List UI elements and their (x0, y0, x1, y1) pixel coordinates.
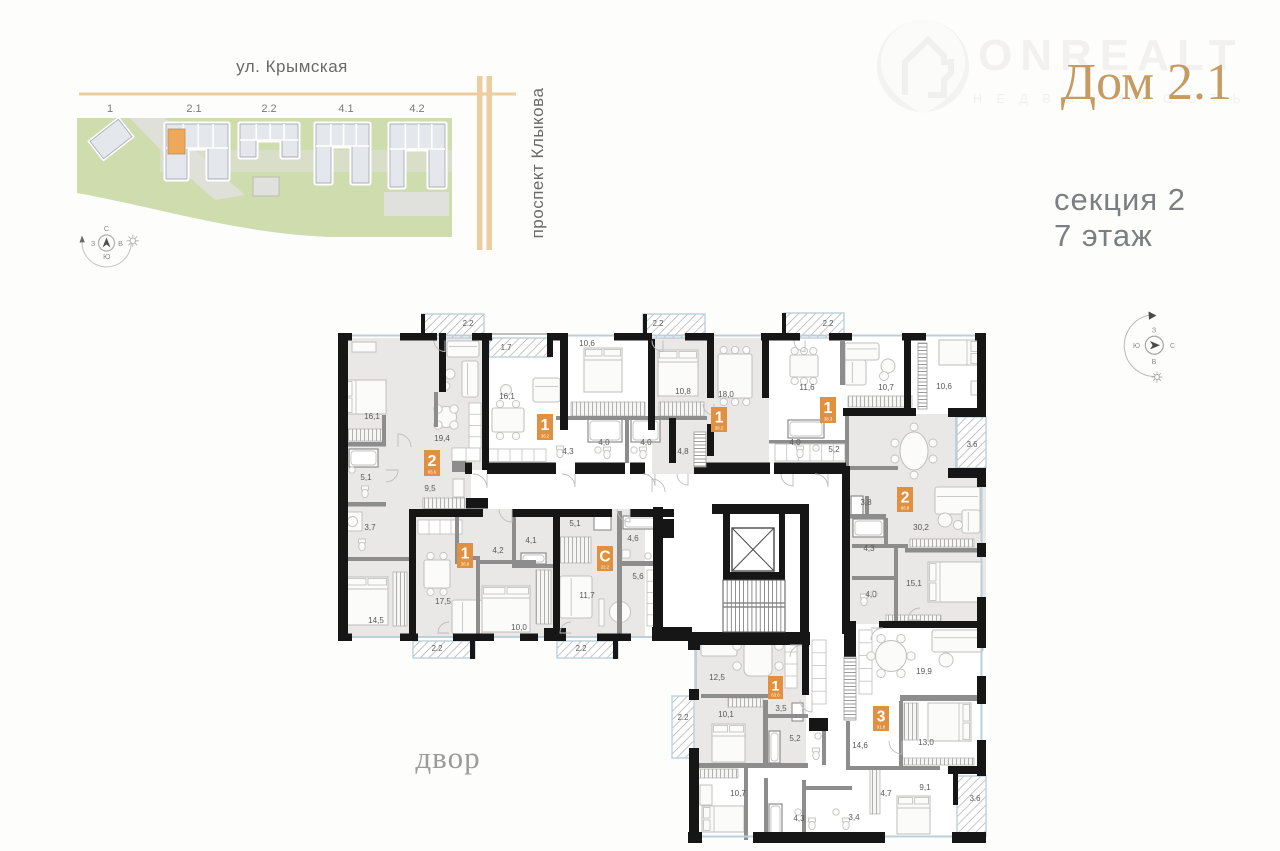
svg-text:18,0: 18,0 (718, 390, 734, 399)
svg-text:38.3: 38.3 (824, 417, 833, 422)
svg-text:10,6: 10,6 (579, 339, 595, 348)
svg-text:С: С (599, 549, 610, 566)
svg-text:10,7: 10,7 (878, 383, 894, 392)
svg-text:9,1: 9,1 (919, 783, 931, 792)
svg-text:4.2: 4.2 (409, 103, 424, 115)
svg-text:4.1: 4.1 (338, 103, 353, 115)
svg-text:2.2: 2.2 (653, 319, 664, 328)
svg-text:63.0: 63.0 (771, 693, 780, 698)
svg-text:2: 2 (901, 490, 910, 507)
svg-text:Ю: Ю (1133, 343, 1140, 350)
svg-text:5,6: 5,6 (632, 572, 644, 581)
svg-text:10,8: 10,8 (675, 387, 691, 396)
svg-text:3.6: 3.6 (970, 794, 981, 803)
svg-text:10,1: 10,1 (718, 710, 734, 719)
svg-text:1.7: 1.7 (501, 343, 512, 352)
svg-text:22.2: 22.2 (601, 565, 610, 570)
svg-text:3: 3 (877, 709, 886, 726)
svg-text:14,6: 14,6 (852, 741, 868, 750)
svg-text:5,1: 5,1 (569, 519, 581, 528)
svg-text:1: 1 (107, 103, 113, 115)
svg-text:9,5: 9,5 (424, 484, 436, 493)
svg-text:36.2: 36.2 (541, 434, 550, 439)
svg-text:91.8: 91.8 (877, 725, 886, 730)
svg-text:В: В (1152, 359, 1157, 366)
svg-text:4,1: 4,1 (525, 536, 537, 545)
svg-text:14,5: 14,5 (368, 616, 384, 625)
svg-text:ул. Крымская: ул. Крымская (236, 57, 348, 76)
svg-text:11,7: 11,7 (579, 591, 595, 600)
svg-text:1: 1 (461, 546, 470, 563)
svg-text:7 этаж: 7 этаж (1054, 218, 1153, 253)
svg-text:4,7: 4,7 (880, 789, 892, 798)
svg-text:16,1: 16,1 (364, 412, 380, 421)
svg-text:В: В (118, 239, 123, 248)
svg-text:4,0: 4,0 (598, 438, 610, 447)
svg-text:3,7: 3,7 (364, 523, 376, 532)
svg-text:Ю: Ю (103, 252, 110, 261)
svg-text:3,4: 3,4 (848, 813, 860, 822)
svg-text:10,7: 10,7 (730, 789, 746, 798)
svg-text:С: С (1170, 343, 1175, 350)
svg-text:2.2: 2.2 (432, 644, 443, 653)
svg-text:2.2: 2.2 (678, 713, 689, 722)
svg-text:2.2: 2.2 (576, 644, 587, 653)
svg-text:З: З (1152, 328, 1156, 335)
svg-text:36.6: 36.6 (461, 562, 470, 567)
svg-text:19,4: 19,4 (434, 434, 450, 443)
svg-text:5,1: 5,1 (360, 473, 372, 482)
svg-text:2.1: 2.1 (186, 103, 201, 115)
svg-text:проспект Клыкова: проспект Клыкова (528, 88, 547, 239)
svg-text:4,0: 4,0 (640, 438, 652, 447)
svg-text:2.2: 2.2 (261, 103, 276, 115)
svg-text:1: 1 (715, 410, 724, 427)
svg-text:38.2: 38.2 (715, 426, 724, 431)
svg-text:4,3: 4,3 (863, 544, 875, 553)
svg-text:2: 2 (428, 452, 437, 470)
svg-text:3.6: 3.6 (967, 440, 978, 449)
svg-text:1: 1 (824, 399, 833, 417)
svg-text:19,9: 19,9 (916, 667, 932, 676)
svg-text:13,0: 13,0 (918, 738, 934, 747)
svg-text:Дом 2.1: Дом 2.1 (1061, 54, 1232, 111)
svg-text:10,6: 10,6 (936, 382, 952, 391)
svg-text:4,0: 4,0 (865, 590, 877, 599)
svg-text:С: С (104, 224, 109, 233)
svg-text:66.6: 66.6 (428, 470, 437, 475)
svg-text:5,2: 5,2 (828, 445, 840, 454)
svg-text:З: З (91, 239, 95, 248)
svg-text:10,0: 10,0 (511, 623, 527, 632)
svg-text:3,5: 3,5 (775, 704, 787, 713)
svg-text:двор: двор (415, 740, 480, 775)
svg-text:3,8: 3,8 (860, 498, 872, 507)
svg-text:15,1: 15,1 (906, 579, 922, 588)
svg-text:11,6: 11,6 (799, 383, 815, 392)
svg-text:4,0: 4,0 (789, 438, 801, 447)
svg-text:16,1: 16,1 (499, 392, 515, 401)
svg-text:секция 2: секция 2 (1054, 182, 1186, 217)
svg-text:4,6: 4,6 (627, 534, 639, 543)
svg-text:12,5: 12,5 (709, 673, 725, 682)
svg-text:30,2: 30,2 (913, 523, 929, 532)
svg-text:68.8: 68.8 (901, 506, 910, 511)
svg-text:4,3: 4,3 (562, 447, 574, 456)
svg-text:17,5: 17,5 (435, 597, 451, 606)
svg-text:4,2: 4,2 (492, 546, 504, 555)
svg-text:4,3: 4,3 (793, 814, 805, 823)
svg-text:1: 1 (541, 416, 550, 434)
svg-text:2.2: 2.2 (823, 319, 834, 328)
svg-text:2.2: 2.2 (463, 319, 474, 328)
svg-text:5,2: 5,2 (789, 734, 801, 743)
svg-text:4,8: 4,8 (677, 447, 689, 456)
